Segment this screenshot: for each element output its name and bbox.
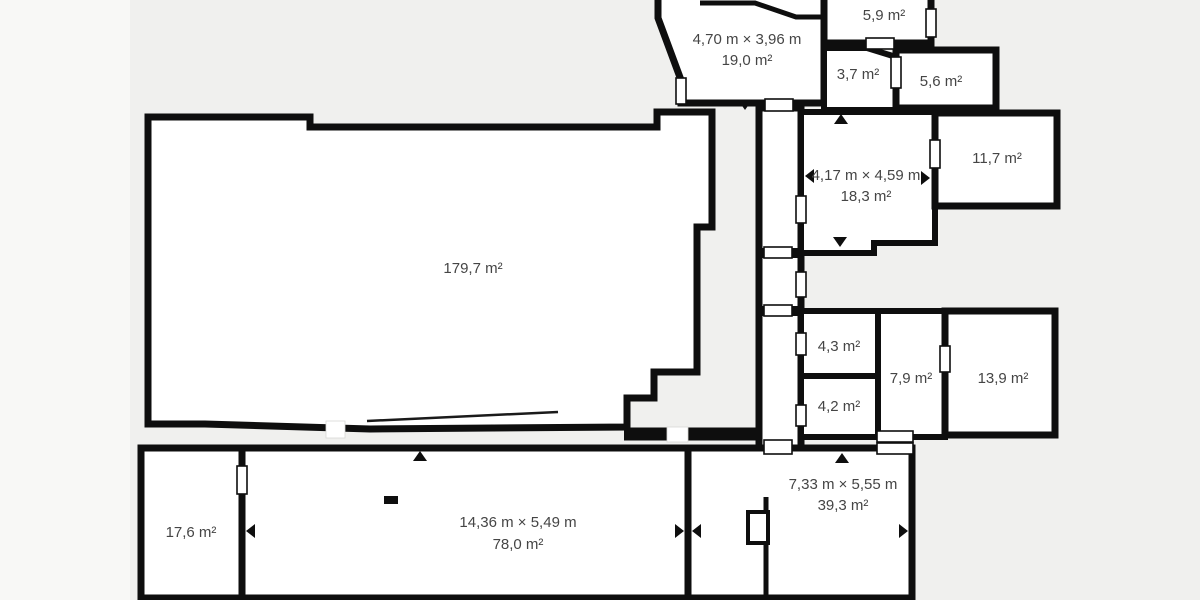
wall-stub-marker <box>384 496 398 504</box>
room-area-label: 5,6 m² <box>920 73 963 90</box>
room-area-label: 7,9 m² <box>890 370 933 387</box>
window-marker <box>796 333 806 355</box>
window-marker <box>765 99 793 111</box>
room-area-label: 3,7 m² <box>837 66 880 83</box>
window-marker <box>877 431 913 442</box>
room-size-label: 4,17 m × 4,59 m <box>812 167 921 184</box>
room-area-label: 5,9 m² <box>863 7 906 24</box>
room-size-label: 14,36 m × 5,49 m <box>459 514 576 531</box>
room-area-label: 17,6 m² <box>166 524 217 541</box>
wall-opening <box>326 421 345 438</box>
room-area-label: 39,3 m² <box>818 497 869 514</box>
room-area-label: 19,0 m² <box>722 52 773 69</box>
window-marker <box>796 272 806 297</box>
corridor <box>759 108 801 448</box>
room-area-label: 18,3 m² <box>841 188 892 205</box>
window-marker <box>930 140 940 168</box>
window-marker <box>764 247 792 258</box>
room-area-label: 4,2 m² <box>818 398 861 415</box>
window-marker <box>676 78 686 104</box>
room-area-label: 4,3 m² <box>818 338 861 355</box>
window-marker <box>796 405 806 426</box>
room-size-label: 7,33 m × 5,55 m <box>789 476 898 493</box>
window-marker <box>866 38 894 49</box>
room-area-label: 11,7 m² <box>972 150 1022 167</box>
pillar-marker <box>748 512 768 543</box>
room-area-label: 78,0 m² <box>493 536 544 553</box>
room-39-3 <box>688 448 912 598</box>
window-marker <box>940 346 950 372</box>
window-marker <box>877 443 913 454</box>
window-marker <box>891 57 901 88</box>
door-opening <box>667 427 688 442</box>
room-area-label: 179,7 m² <box>443 260 502 277</box>
window-marker <box>796 196 806 223</box>
window-marker <box>926 9 936 37</box>
room-size-label: 4,70 m × 3,96 m <box>693 31 802 48</box>
window-marker <box>764 305 792 316</box>
floor-plan: 179,7 m² 4,70 m × 3,96 m 19,0 m² 5,9 m² … <box>0 0 1200 600</box>
room-17-6 <box>141 448 242 598</box>
room-living-room <box>148 112 712 429</box>
window-marker <box>237 466 247 494</box>
page-left-margin <box>0 0 130 600</box>
room-area-label: 13,9 m² <box>978 370 1029 387</box>
window-marker <box>764 440 792 454</box>
